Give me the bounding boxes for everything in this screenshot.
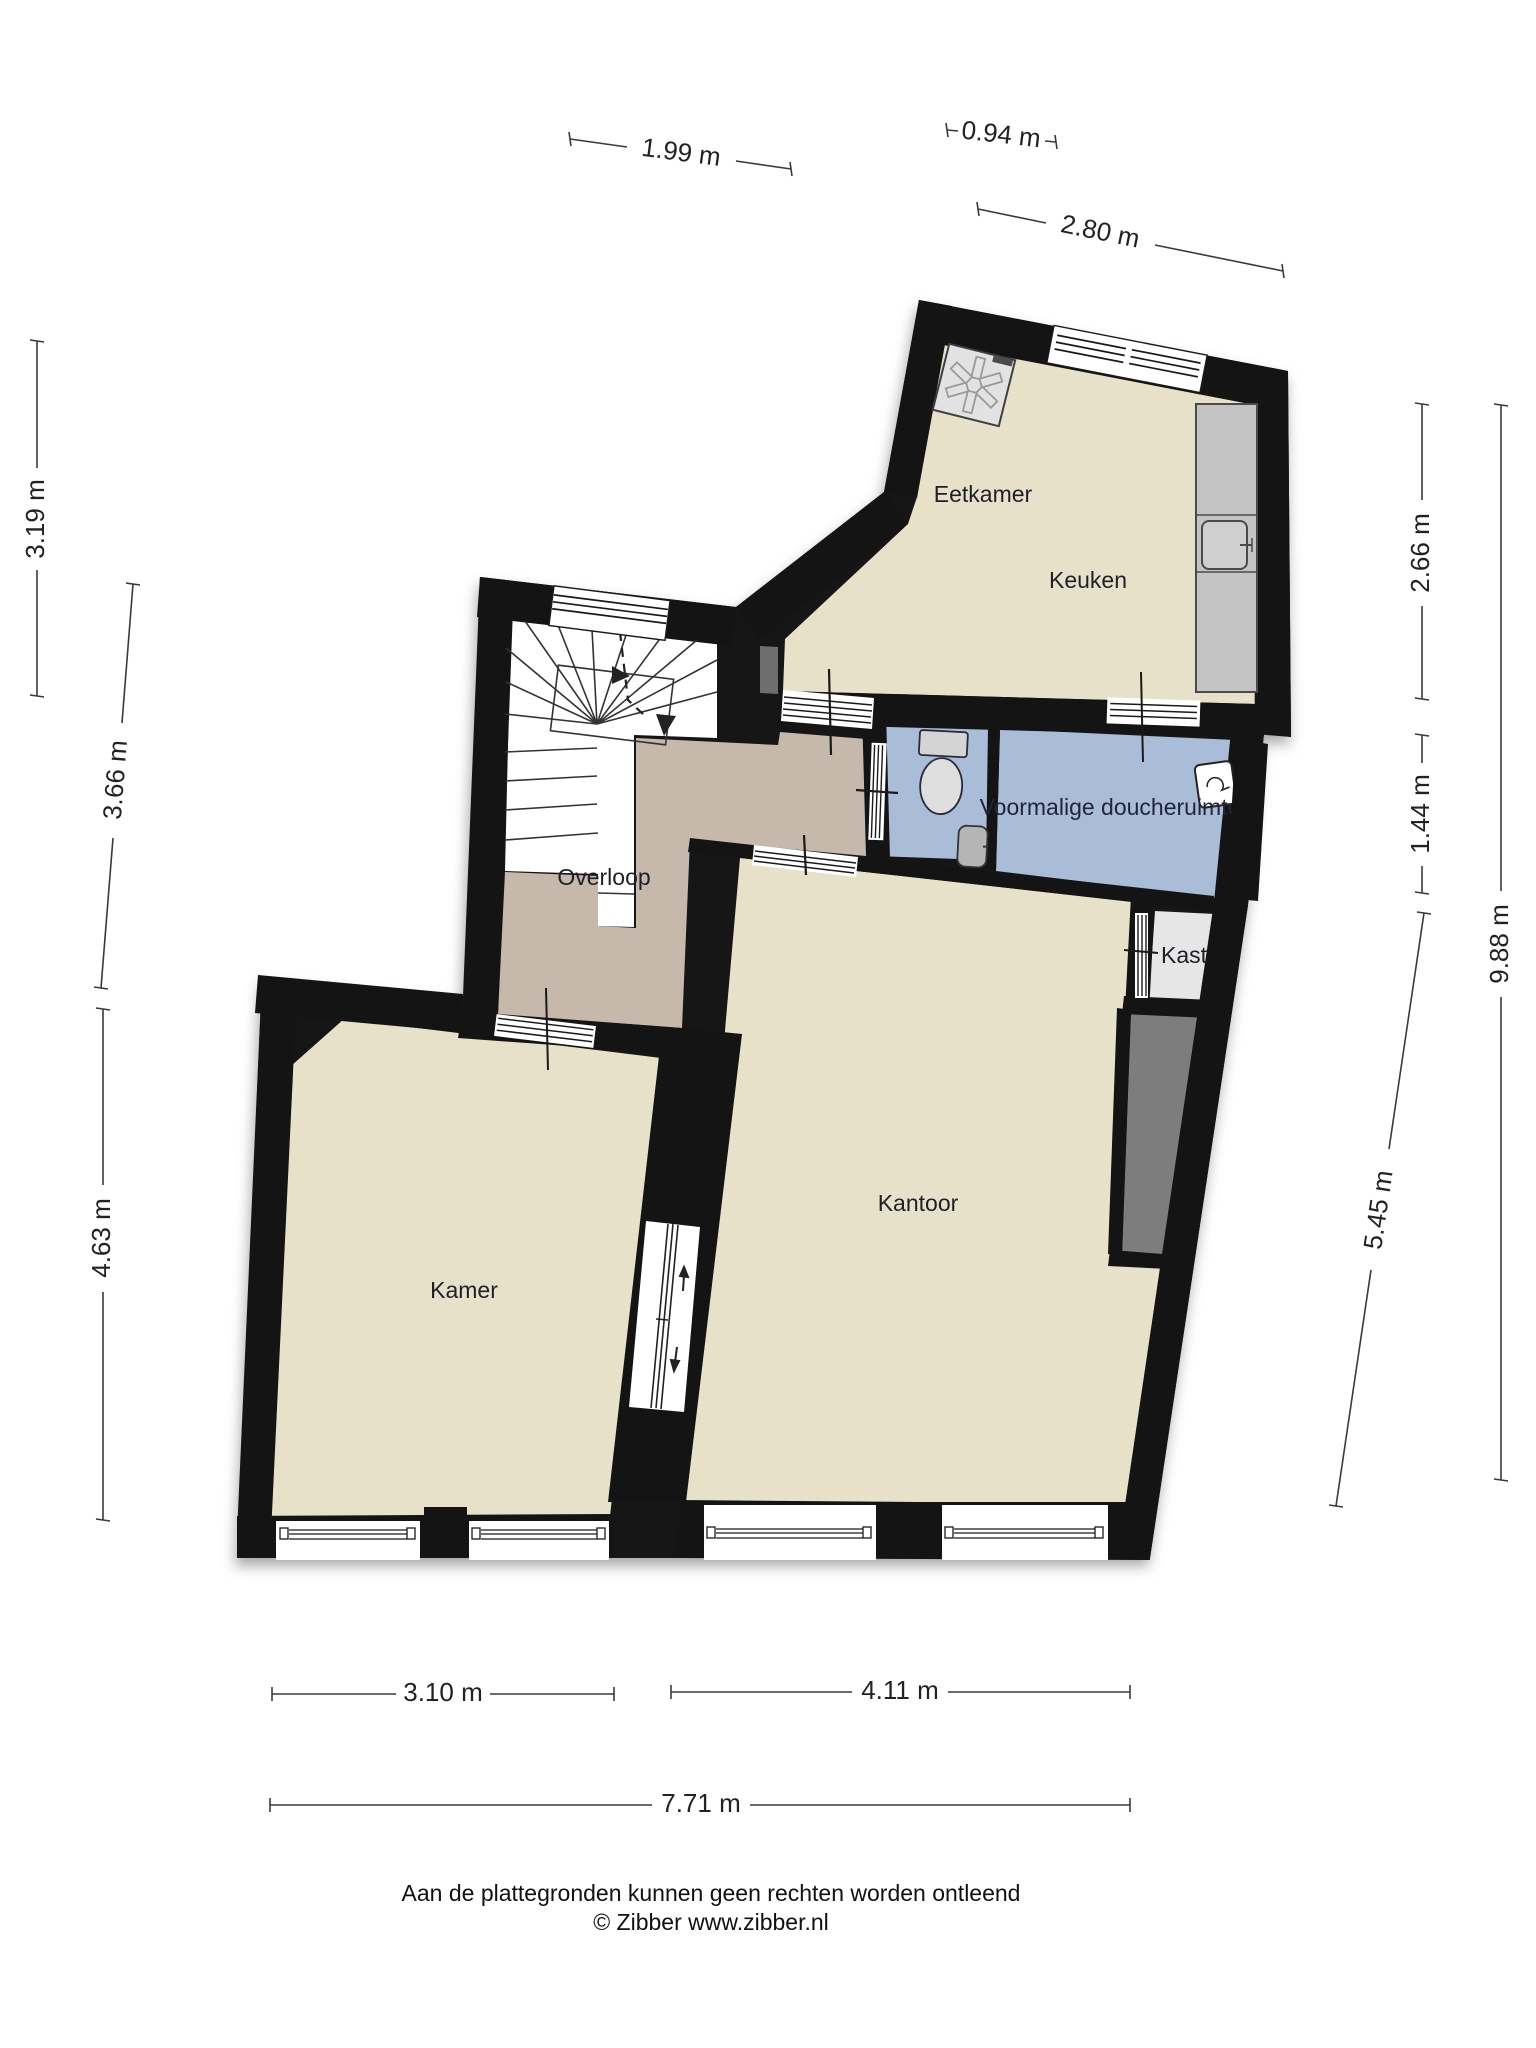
svg-text:1.44 m: 1.44 m [1405, 774, 1435, 854]
svg-text:4.11 m: 4.11 m [861, 1675, 939, 1705]
svg-text:Voormalige doucheruimte: Voormalige doucheruimte [980, 794, 1241, 820]
svg-text:7.71 m: 7.71 m [661, 1788, 741, 1818]
svg-text:Kast: Kast [1161, 942, 1208, 968]
svg-text:Keuken: Keuken [1049, 567, 1127, 593]
svg-text:Overloop: Overloop [557, 864, 650, 890]
svg-text:Eetkamer: Eetkamer [934, 481, 1033, 507]
svg-text:4.63 m: 4.63 m [86, 1198, 116, 1278]
svg-text:Kantoor: Kantoor [878, 1190, 959, 1216]
svg-text:Aan de plattegronden kunnen ge: Aan de plattegronden kunnen geen rechten… [402, 1880, 1021, 1906]
svg-text:2.66 m: 2.66 m [1405, 513, 1435, 593]
svg-text:Kamer: Kamer [430, 1277, 498, 1303]
svg-text:3.19 m: 3.19 m [20, 479, 50, 559]
svg-text:3.10 m: 3.10 m [403, 1677, 483, 1707]
svg-text:9.88 m: 9.88 m [1484, 904, 1514, 984]
svg-text:3.66 m: 3.66 m [97, 739, 133, 821]
svg-text:© Zibber www.zibber.nl: © Zibber www.zibber.nl [593, 1909, 829, 1935]
